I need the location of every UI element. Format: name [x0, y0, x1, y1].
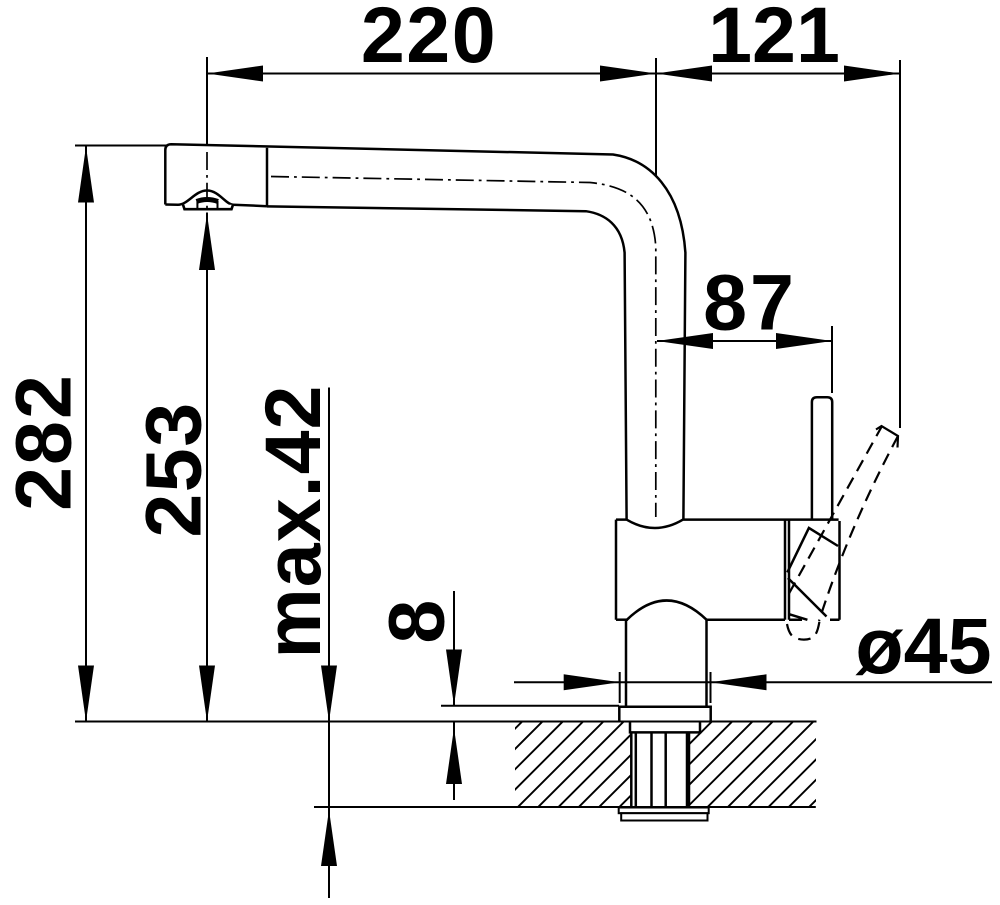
svg-text:8: 8	[372, 600, 461, 644]
svg-text:253: 253	[129, 401, 218, 537]
svg-text:282: 282	[0, 373, 88, 511]
svg-text:220: 220	[361, 0, 497, 79]
svg-text:ø45: ø45	[855, 601, 991, 690]
svg-text:max.42: max.42	[248, 385, 337, 659]
svg-text:87: 87	[703, 257, 797, 346]
svg-text:121: 121	[708, 0, 840, 79]
